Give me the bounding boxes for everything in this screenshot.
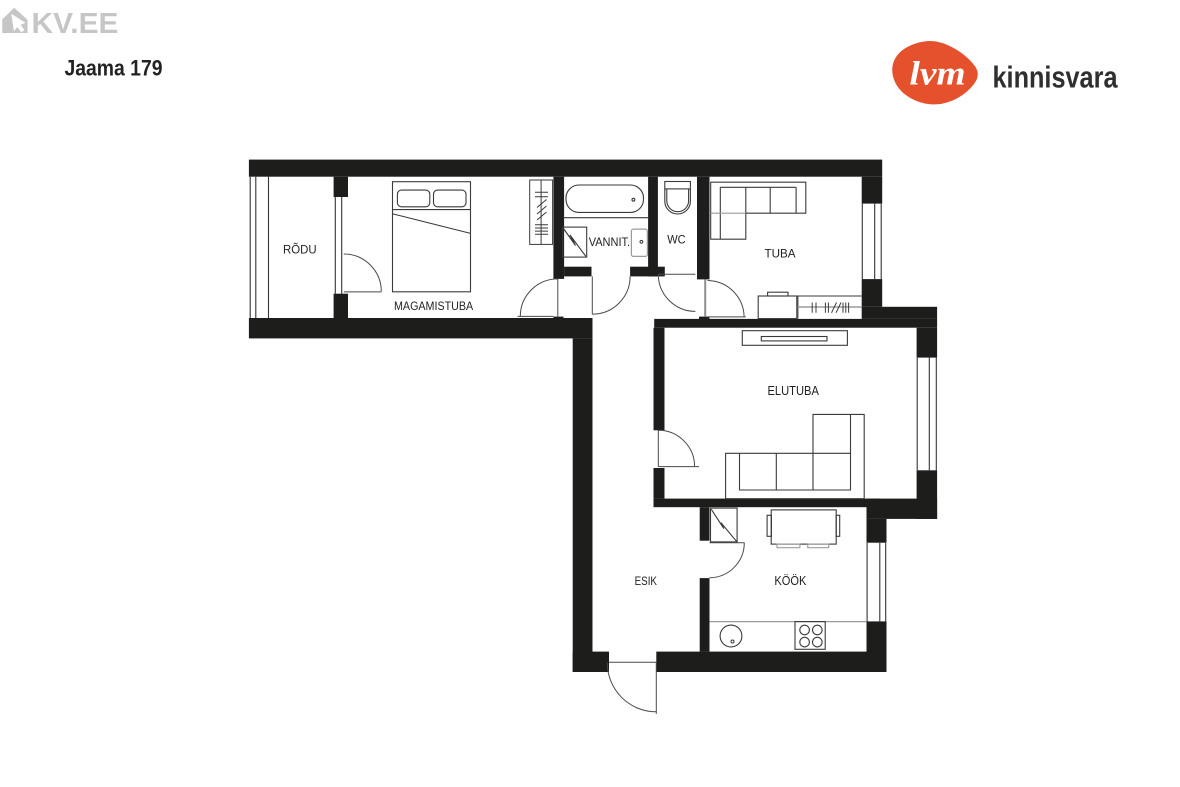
svg-text:lvm: lvm: [910, 56, 966, 93]
svg-text:Jaama 179: Jaama 179: [65, 55, 163, 80]
svg-text:WC: WC: [667, 234, 685, 246]
svg-text:ESIK: ESIK: [635, 574, 658, 588]
svg-text:ELUTUBA: ELUTUBA: [768, 384, 820, 398]
svg-text:RÕDU: RÕDU: [283, 242, 317, 257]
svg-text:KÖÖK: KÖÖK: [774, 574, 807, 588]
svg-text:KV.EE: KV.EE: [32, 8, 119, 40]
svg-text:MAGAMISTUBA: MAGAMISTUBA: [394, 299, 474, 313]
svg-text:TUBA: TUBA: [765, 246, 797, 260]
svg-text:VANNIT.: VANNIT.: [589, 235, 630, 249]
svg-text:kinnisvara: kinnisvara: [993, 60, 1119, 95]
